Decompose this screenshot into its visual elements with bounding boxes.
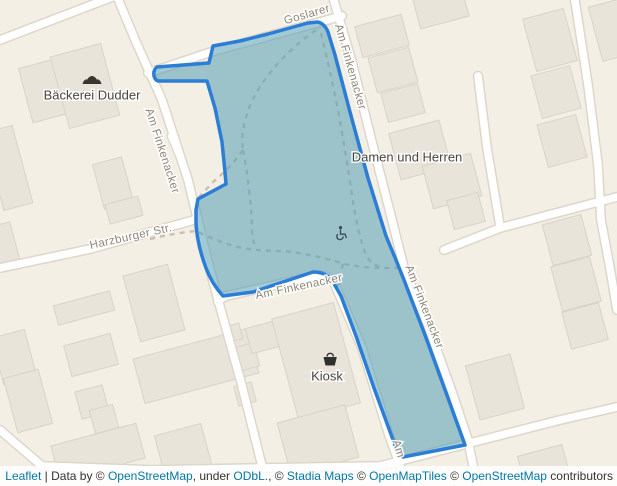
building	[523, 8, 578, 71]
attribution-text: ©	[447, 469, 463, 483]
attribution-text: , ©	[268, 469, 287, 483]
map-viewport[interactable]: Goslarer Am Finkenacker Am Finkenacker A…	[0, 0, 617, 486]
building	[0, 222, 20, 264]
map-canvas: Goslarer Am Finkenacker Am Finkenacker A…	[0, 0, 617, 486]
attribution-text: | Data by ©	[41, 469, 108, 483]
attribution-text: , under	[193, 469, 234, 483]
building	[53, 291, 114, 325]
poi-label-baeckerei-dudder: Bäckerei Dudder	[44, 87, 141, 102]
building	[123, 264, 185, 342]
building	[531, 66, 581, 119]
attribution-text: ©	[354, 469, 370, 483]
attribution-link-stadia-maps[interactable]: Stadia Maps	[287, 469, 354, 483]
attribution-bar: Leaflet | Data by © OpenStreetMap, under…	[0, 466, 617, 486]
attribution-link-odbl[interactable]: ODbL.	[233, 469, 268, 483]
building	[3, 369, 52, 432]
attribution-link-openmaptiles[interactable]: OpenMapTiles	[369, 469, 447, 483]
attribution-link-leaflet[interactable]: Leaflet	[5, 469, 41, 483]
attribution-link-openstreetmap[interactable]: OpenStreetMap	[108, 469, 193, 483]
road-dead-end	[478, 76, 500, 226]
building	[588, 0, 617, 61]
building	[0, 125, 33, 210]
poi-label-damen-und-herren: Damen und Herren	[352, 149, 463, 164]
building	[413, 0, 469, 29]
attribution-text: contributors	[547, 469, 613, 483]
poi-label-kiosk: Kiosk	[311, 368, 343, 383]
attribution-link-openstreetmap-2[interactable]: OpenStreetMap	[462, 469, 547, 483]
building	[466, 354, 525, 420]
building	[537, 115, 587, 168]
building	[64, 333, 119, 376]
building	[551, 257, 602, 312]
